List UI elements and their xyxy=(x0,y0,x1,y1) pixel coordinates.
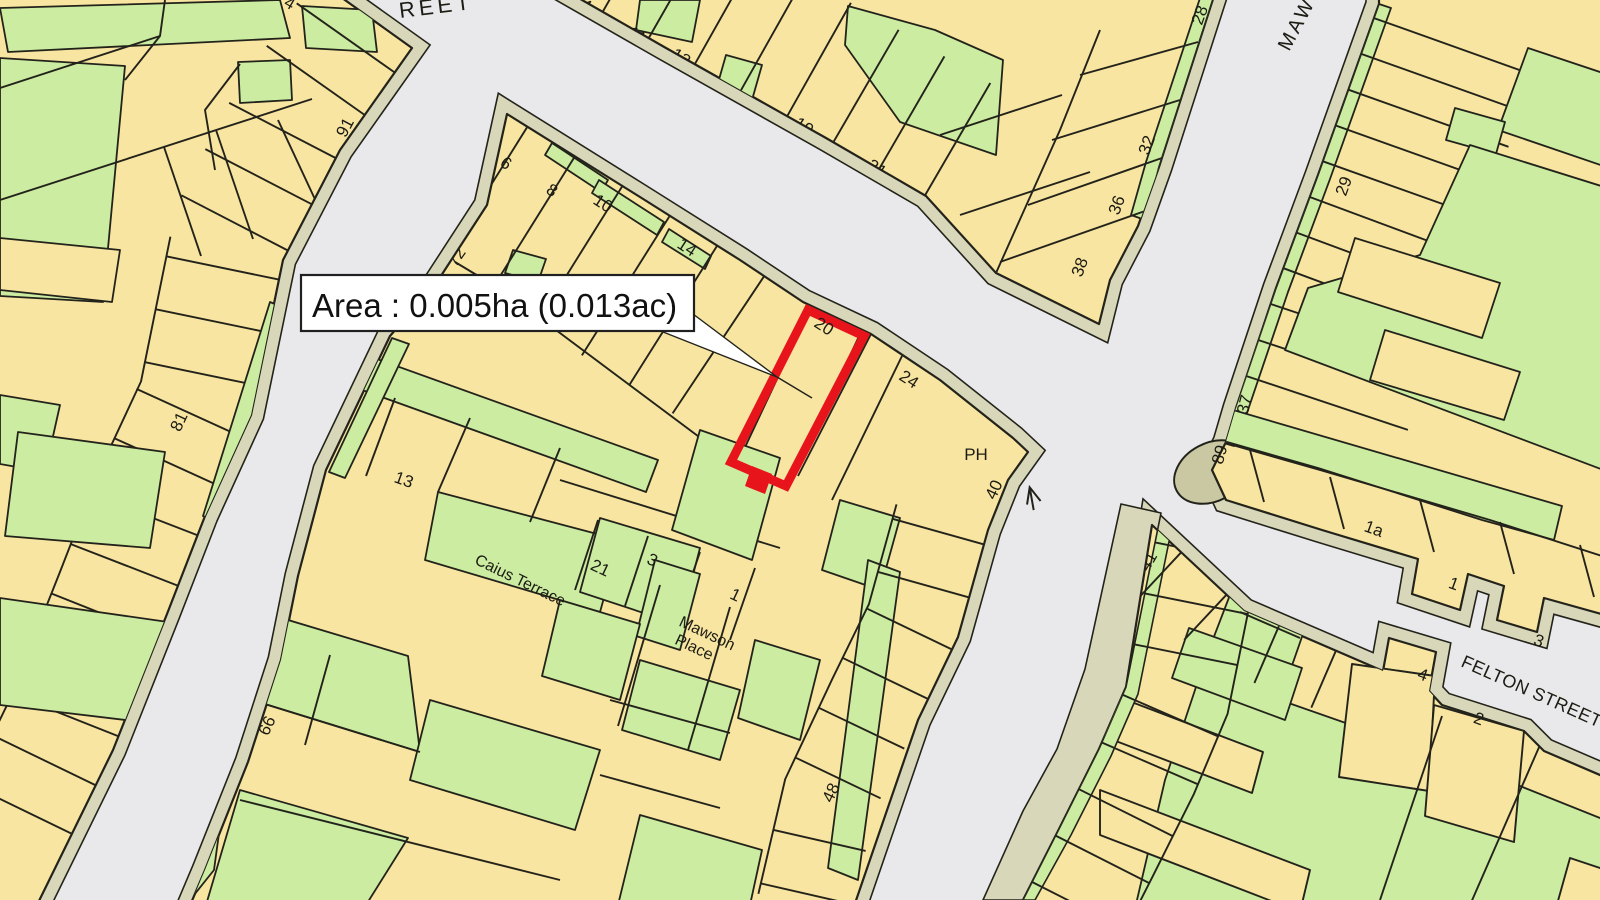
svg-text:Area : 0.005ha (0.013ac): Area : 0.005ha (0.013ac) xyxy=(312,287,677,324)
svg-text:PH: PH xyxy=(964,445,988,464)
